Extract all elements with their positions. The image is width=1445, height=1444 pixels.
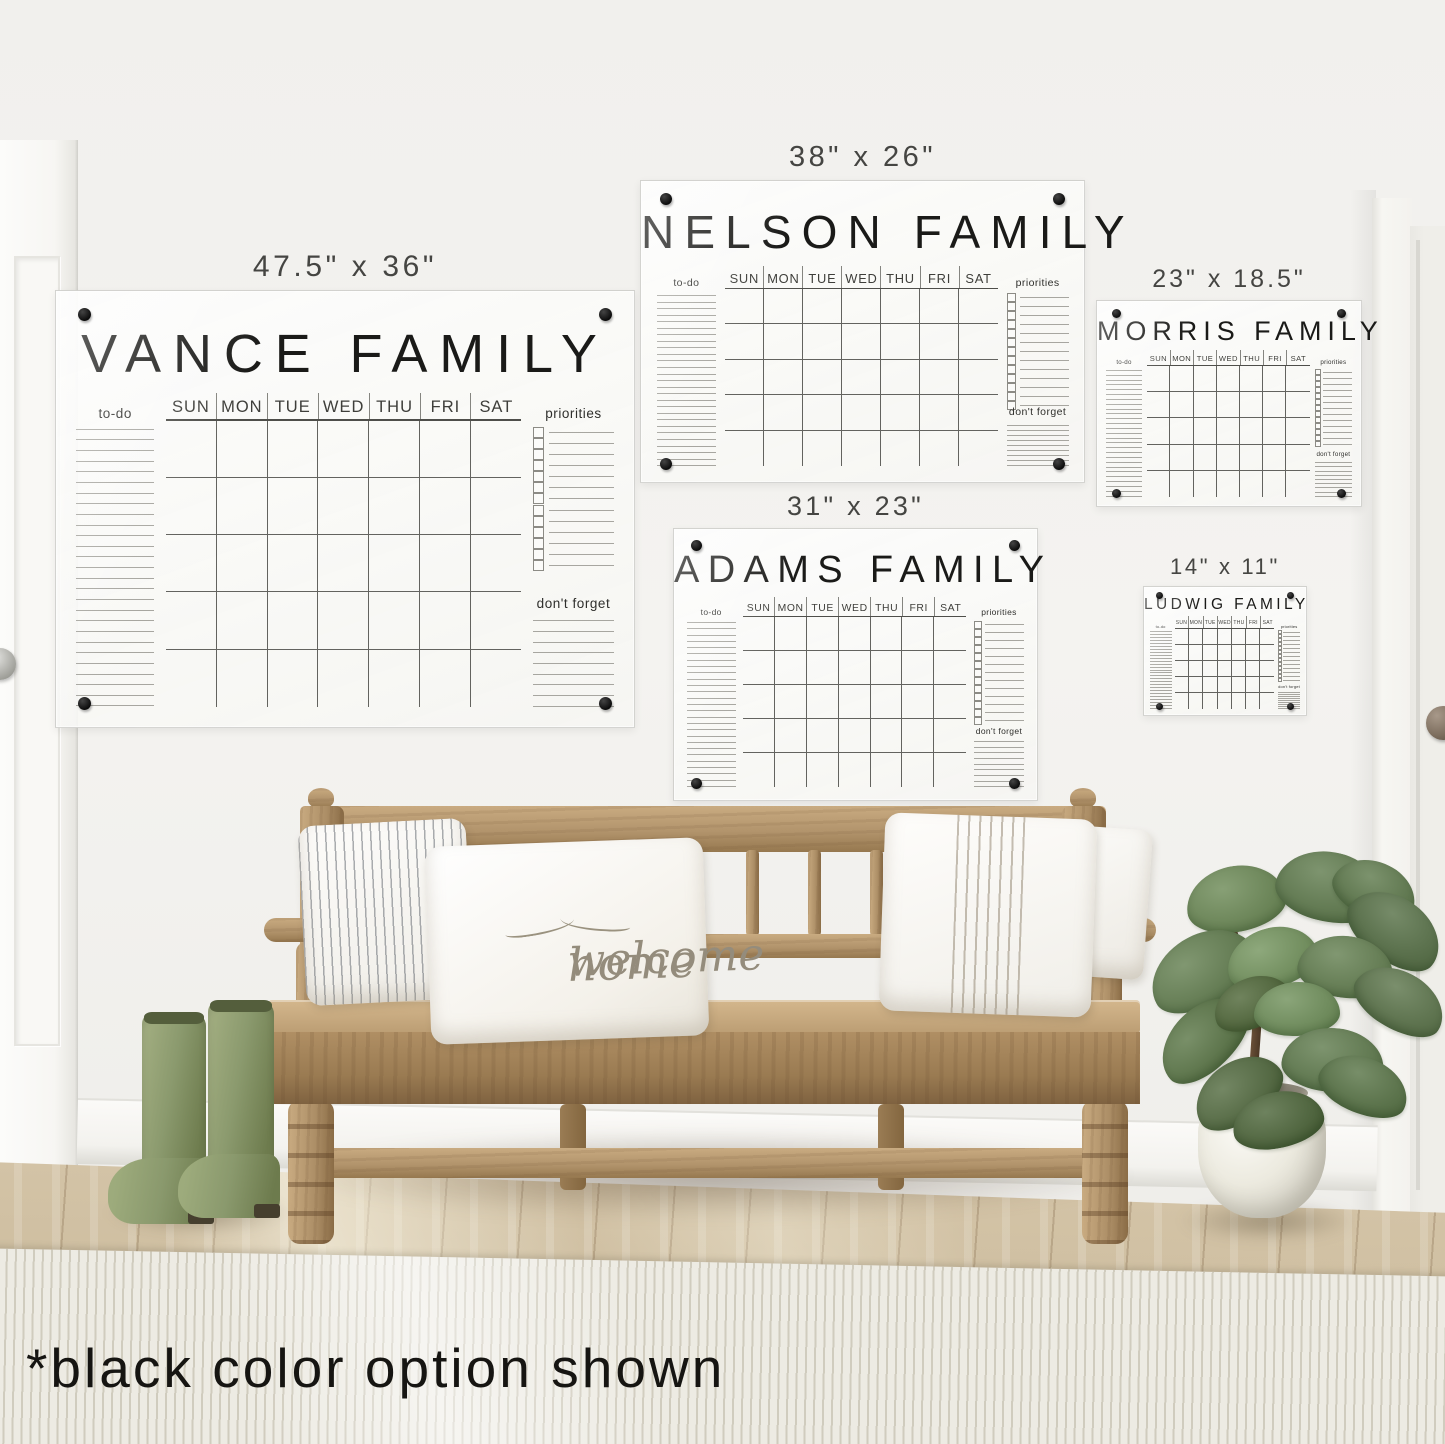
board-body: to-doSUNMONTUEWEDTHUFRISATprioritiesdon'… (1097, 347, 1361, 506)
ruled-line (76, 461, 154, 462)
mount-dot (1287, 592, 1294, 599)
mount-dot (599, 308, 612, 321)
day-cell (1175, 677, 1189, 693)
day-label: THU (1241, 350, 1264, 365)
boot-opening (210, 1000, 272, 1012)
checkbox (974, 621, 982, 629)
mount-dot (1112, 309, 1121, 318)
ruled-line (687, 761, 736, 762)
bench-spindle (746, 850, 759, 936)
ruled-line (1150, 690, 1172, 691)
ruled-line (1106, 433, 1142, 434)
board-title: ADAMS FAMILY (674, 549, 1037, 592)
month-grid-column: SUNMONTUEWEDTHUFRISAT (166, 393, 521, 707)
dont-forget-lines (1315, 462, 1352, 497)
ruled-line (1150, 631, 1172, 632)
ruled-line (687, 653, 736, 654)
ruled-line (687, 710, 736, 711)
calendar-board-vance: 47.5" x 36"VANCE FAMILYto-doSUNMONTUEWED… (55, 290, 635, 728)
ruled-line (1315, 483, 1352, 484)
todo-label: to-do (657, 266, 717, 289)
day-cell (1147, 471, 1170, 497)
boot-heel (254, 1204, 280, 1218)
ruled-line (1020, 342, 1069, 343)
mount-dot (691, 540, 702, 551)
day-label: THU (871, 597, 903, 616)
day-cell (1189, 693, 1203, 709)
day-label: MON (775, 597, 807, 616)
day-cell (166, 592, 217, 649)
day-cell (1194, 418, 1217, 444)
ruled-line (549, 510, 614, 511)
ruled-line (76, 652, 154, 653)
right-door-bevel (1416, 240, 1420, 1190)
day-cell (1246, 677, 1260, 693)
day-cell (1147, 366, 1170, 392)
ruled-line (549, 565, 614, 566)
day-cell (420, 650, 471, 707)
day-cell (1286, 392, 1309, 418)
bench-stretcher (330, 1148, 1090, 1178)
day-cell (1147, 418, 1170, 444)
ruled-line (1106, 457, 1142, 458)
ruled-line (1315, 496, 1352, 497)
ruled-line (687, 748, 736, 749)
size-label: 23" x 18.5" (1071, 265, 1388, 294)
day-cell (959, 289, 998, 325)
todo-lines (687, 622, 736, 787)
day-cell (1240, 418, 1263, 444)
day-cell (871, 651, 903, 685)
day-header-row: SUNMONTUEWEDTHUFRISAT (743, 597, 966, 617)
ruled-line (533, 642, 614, 643)
day-cell (369, 650, 420, 707)
day-cell (1203, 645, 1217, 661)
month-grid (725, 289, 997, 467)
checkbox (533, 427, 544, 438)
ruled-line (1020, 387, 1069, 388)
ruled-line (687, 635, 736, 636)
ruled-line (1106, 476, 1142, 477)
day-label: TUE (803, 266, 842, 288)
priorities-label: priorities (1007, 266, 1069, 289)
day-cell (807, 617, 839, 651)
ruled-line (1106, 394, 1142, 395)
size-label: 47.5" x 36" (0, 250, 692, 284)
day-cell (764, 289, 803, 325)
ruled-line (1283, 648, 1300, 649)
ruled-line (657, 308, 717, 309)
board-title: NELSON FAMILY (641, 205, 1084, 259)
ruled-line (76, 503, 154, 504)
board-title: VANCE FAMILY (56, 323, 634, 385)
ruled-line (657, 393, 717, 394)
ruled-line (1150, 681, 1172, 682)
month-grid-column: SUNMONTUEWEDTHUFRISAT (1147, 350, 1309, 497)
day-cell (881, 289, 920, 325)
day-cell (268, 592, 319, 649)
checkbox (974, 701, 982, 709)
ruled-line (1106, 462, 1142, 463)
ruled-line (549, 498, 614, 499)
boot-shaft (208, 1000, 274, 1172)
ruled-line (1150, 670, 1172, 671)
checkbox (533, 549, 544, 560)
ruled-line (657, 295, 717, 296)
ruled-line (76, 684, 154, 685)
day-cell (1217, 366, 1240, 392)
ruled-line (657, 328, 717, 329)
ruled-line (1283, 636, 1300, 637)
ruled-line (985, 624, 1024, 625)
day-cell (1286, 366, 1309, 392)
day-label: WED (839, 597, 871, 616)
ruled-line (1323, 402, 1352, 403)
bench-finial-right (1070, 788, 1096, 808)
ruled-line (1150, 646, 1172, 647)
day-cell (902, 651, 934, 685)
day-label: SAT (960, 266, 998, 288)
ruled-line (985, 648, 1024, 649)
day-label: FRI (1264, 350, 1287, 365)
day-header-row: SUNMONTUEWEDTHUFRISAT (1147, 350, 1309, 366)
priority-row (974, 669, 1025, 677)
ruled-line (657, 419, 717, 420)
mount-dot (599, 697, 612, 710)
checkbox (533, 527, 544, 538)
priority-row (1007, 293, 1069, 302)
day-cell (369, 535, 420, 592)
day-cell (743, 617, 775, 651)
priority-row (1007, 374, 1069, 383)
striped-pillow-right (879, 812, 1098, 1017)
ruled-line (985, 680, 1024, 681)
todo-lines (1150, 631, 1172, 709)
ruled-line (533, 631, 614, 632)
board-title: MORRIS FAMILY (1097, 316, 1361, 347)
day-cell (1170, 445, 1193, 471)
ruled-line (1106, 418, 1142, 419)
ruled-line (1106, 375, 1142, 376)
checkbox (1007, 383, 1016, 392)
ruled-line (76, 610, 154, 611)
day-cell (268, 650, 319, 707)
ruled-line (1323, 372, 1352, 373)
checkbox (1007, 329, 1016, 338)
checkbox (1007, 338, 1016, 347)
checkbox (974, 645, 982, 653)
mount-dot (1053, 193, 1065, 205)
day-cell (725, 395, 764, 431)
day-cell (803, 360, 842, 396)
ruled-line (1106, 467, 1142, 468)
ruled-line (76, 695, 154, 696)
checkbox (1007, 356, 1016, 365)
checkbox (533, 438, 544, 449)
ruled-line (1315, 492, 1352, 493)
ruled-line (549, 554, 614, 555)
day-cell (1175, 693, 1189, 709)
ruled-line (1283, 644, 1300, 645)
ruled-line (974, 769, 1025, 770)
day-cell (902, 753, 934, 787)
ruled-line (1007, 440, 1069, 441)
ruled-line (1020, 315, 1069, 316)
ruled-line (76, 471, 154, 472)
checkbox (533, 471, 544, 482)
board-body: to-doSUNMONTUEWEDTHUFRISATprioritiesdon'… (641, 259, 1084, 482)
ruled-line (974, 764, 1025, 765)
day-label: FRI (903, 597, 935, 616)
day-label: FRI (421, 393, 472, 419)
day-cell (807, 719, 839, 753)
checkbox (1007, 320, 1016, 329)
side-column: prioritiesdon't forget (1278, 616, 1301, 709)
priority-row (974, 693, 1025, 701)
ruled-line (657, 315, 717, 316)
ruled-line (1106, 423, 1142, 424)
priorities-list (974, 621, 1025, 709)
ruled-line (1323, 378, 1352, 379)
day-cell (268, 535, 319, 592)
ruled-line (1315, 475, 1352, 476)
checkbox (1007, 302, 1016, 311)
todo-label: to-do (687, 597, 736, 617)
ruled-line (1150, 661, 1172, 662)
ruled-line (76, 599, 154, 600)
day-label: SUN (166, 393, 217, 419)
ruled-line (1106, 486, 1142, 487)
day-cell (842, 324, 881, 360)
ruled-line (687, 723, 736, 724)
month-grid (1147, 366, 1309, 496)
priority-row (1007, 302, 1069, 311)
day-label: WED (842, 266, 881, 288)
ruled-line (1278, 700, 1301, 701)
ruled-line (687, 767, 736, 768)
day-cell (318, 592, 369, 649)
day-cell (1260, 693, 1274, 709)
priorities-list (1278, 630, 1301, 673)
ruled-line (985, 688, 1024, 689)
day-cell (1286, 418, 1309, 444)
ruled-line (985, 632, 1024, 633)
ruled-line (687, 622, 736, 623)
checkbox (974, 677, 982, 685)
dont-forget-label: don't forget (1315, 442, 1352, 458)
ruled-line (76, 567, 154, 568)
board-body: to-doSUNMONTUEWEDTHUFRISATprioritiesdon'… (1144, 614, 1306, 715)
day-cell (1263, 418, 1286, 444)
day-cell (775, 753, 807, 787)
day-cell (471, 421, 522, 478)
day-cell (471, 650, 522, 707)
day-cell (1246, 693, 1260, 709)
day-label: FRI (921, 266, 960, 288)
day-label: MON (764, 266, 803, 288)
ruled-line (1007, 450, 1069, 451)
month-grid (743, 617, 966, 787)
ruled-line (1323, 396, 1352, 397)
ruled-line (1007, 430, 1069, 431)
ruled-line (974, 747, 1025, 748)
ruled-line (687, 729, 736, 730)
ruled-line (1278, 696, 1301, 697)
todo-lines (76, 429, 154, 707)
checkbox (533, 493, 544, 504)
ruled-line (657, 406, 717, 407)
day-cell (1240, 445, 1263, 471)
day-cell (1260, 661, 1274, 677)
size-label: 14" x 11" (1128, 554, 1322, 580)
ruled-line (549, 476, 614, 477)
ruled-line (549, 465, 614, 466)
day-label: SAT (471, 393, 521, 419)
day-cell (217, 592, 268, 649)
ruled-line (657, 387, 717, 388)
ruled-line (76, 450, 154, 451)
todo-lines (1106, 370, 1142, 497)
day-cell (1232, 693, 1246, 709)
todo-column: to-do (687, 597, 736, 787)
ruled-line (1106, 471, 1142, 472)
ruled-line (1283, 632, 1300, 633)
priority-row (1007, 338, 1069, 347)
day-cell (166, 535, 217, 592)
ruled-line (1106, 370, 1142, 371)
day-cell (1260, 629, 1274, 645)
day-cell (764, 395, 803, 431)
month-grid-column: SUNMONTUEWEDTHUFRISAT (743, 597, 966, 787)
ruled-line (1323, 420, 1352, 421)
board-body: to-doSUNMONTUEWEDTHUFRISATprioritiesdon'… (56, 385, 634, 727)
ruled-line (687, 736, 736, 737)
priority-row (1007, 311, 1069, 320)
pillow-word-home: home (567, 938, 697, 988)
priority-row (1007, 347, 1069, 356)
day-cell (1203, 677, 1217, 693)
dont-forget-label: don't forget (1278, 677, 1301, 689)
ruled-line (76, 546, 154, 547)
day-cell (743, 651, 775, 685)
priority-row (533, 438, 614, 449)
ruled-line (76, 663, 154, 664)
day-cell (1147, 392, 1170, 418)
ruled-line (1323, 414, 1352, 415)
day-cell (902, 617, 934, 651)
dont-forget-lines (533, 620, 614, 707)
ruled-line (687, 628, 736, 629)
ruled-line (1150, 643, 1172, 644)
ruled-line (687, 660, 736, 661)
day-cell (1175, 661, 1189, 677)
ruled-line (1150, 678, 1172, 679)
day-cell (1194, 366, 1217, 392)
priority-row (974, 677, 1025, 685)
ruled-line (657, 446, 717, 447)
ruled-line (76, 620, 154, 621)
day-cell (1194, 445, 1217, 471)
day-cell (871, 617, 903, 651)
day-cell (743, 753, 775, 787)
checkbox (533, 538, 544, 549)
day-cell (934, 685, 966, 719)
ruled-line (1007, 425, 1069, 426)
ruled-line (1323, 438, 1352, 439)
side-column: prioritiesdon't forget (1007, 266, 1069, 467)
ruled-line (1150, 637, 1172, 638)
day-cell (1170, 471, 1193, 497)
day-cell (775, 651, 807, 685)
day-cell (1189, 629, 1203, 645)
checkbox (1007, 311, 1016, 320)
ruled-line (1150, 634, 1172, 635)
priority-row (974, 685, 1025, 693)
todo-column: to-do (1106, 350, 1142, 497)
mount-dot (1287, 703, 1294, 710)
checkbox (974, 629, 982, 637)
day-cell (1217, 471, 1240, 497)
day-cell (920, 360, 959, 396)
day-cell (1263, 445, 1286, 471)
mount-dot (660, 458, 672, 470)
ruled-line (657, 334, 717, 335)
ruled-line (76, 535, 154, 536)
mount-dot (78, 697, 91, 710)
priority-row (533, 527, 614, 538)
day-label: THU (881, 266, 920, 288)
day-cell (268, 421, 319, 478)
pillow-stripe-band (951, 815, 1026, 1015)
checkbox (974, 685, 982, 693)
day-cell (1194, 392, 1217, 418)
day-label: MON (1189, 616, 1203, 627)
ruled-line (76, 525, 154, 526)
day-label: TUE (268, 393, 319, 419)
day-cell (1175, 629, 1189, 645)
dont-forget-label: don't forget (533, 583, 614, 611)
checkbox (974, 653, 982, 661)
ruled-line (1278, 694, 1301, 695)
day-cell (934, 651, 966, 685)
day-cell (725, 289, 764, 325)
board-title: LUDWIG FAMILY (1144, 596, 1306, 614)
ruled-line (1323, 432, 1352, 433)
mount-dot (660, 193, 672, 205)
day-cell (920, 289, 959, 325)
calendar-board-nelson: 38" x 26"NELSON FAMILYto-doSUNMONTUEWEDT… (640, 180, 1085, 483)
ruled-line (985, 672, 1024, 673)
ruled-line (1150, 640, 1172, 641)
day-cell (1203, 661, 1217, 677)
day-cell (839, 651, 871, 685)
ruled-line (687, 641, 736, 642)
day-cell (1194, 471, 1217, 497)
day-cell (1170, 418, 1193, 444)
ruled-line (985, 656, 1024, 657)
day-cell (743, 719, 775, 753)
ruled-line (1315, 466, 1352, 467)
priority-row (974, 661, 1025, 669)
ruled-line (1150, 664, 1172, 665)
ruled-line (1020, 297, 1069, 298)
dont-forget-label: don't forget (974, 716, 1025, 736)
day-cell (959, 360, 998, 396)
ruled-line (1106, 404, 1142, 405)
day-cell (1218, 629, 1232, 645)
size-label: 38" x 26" (597, 141, 1129, 174)
checkbox (1007, 293, 1016, 302)
